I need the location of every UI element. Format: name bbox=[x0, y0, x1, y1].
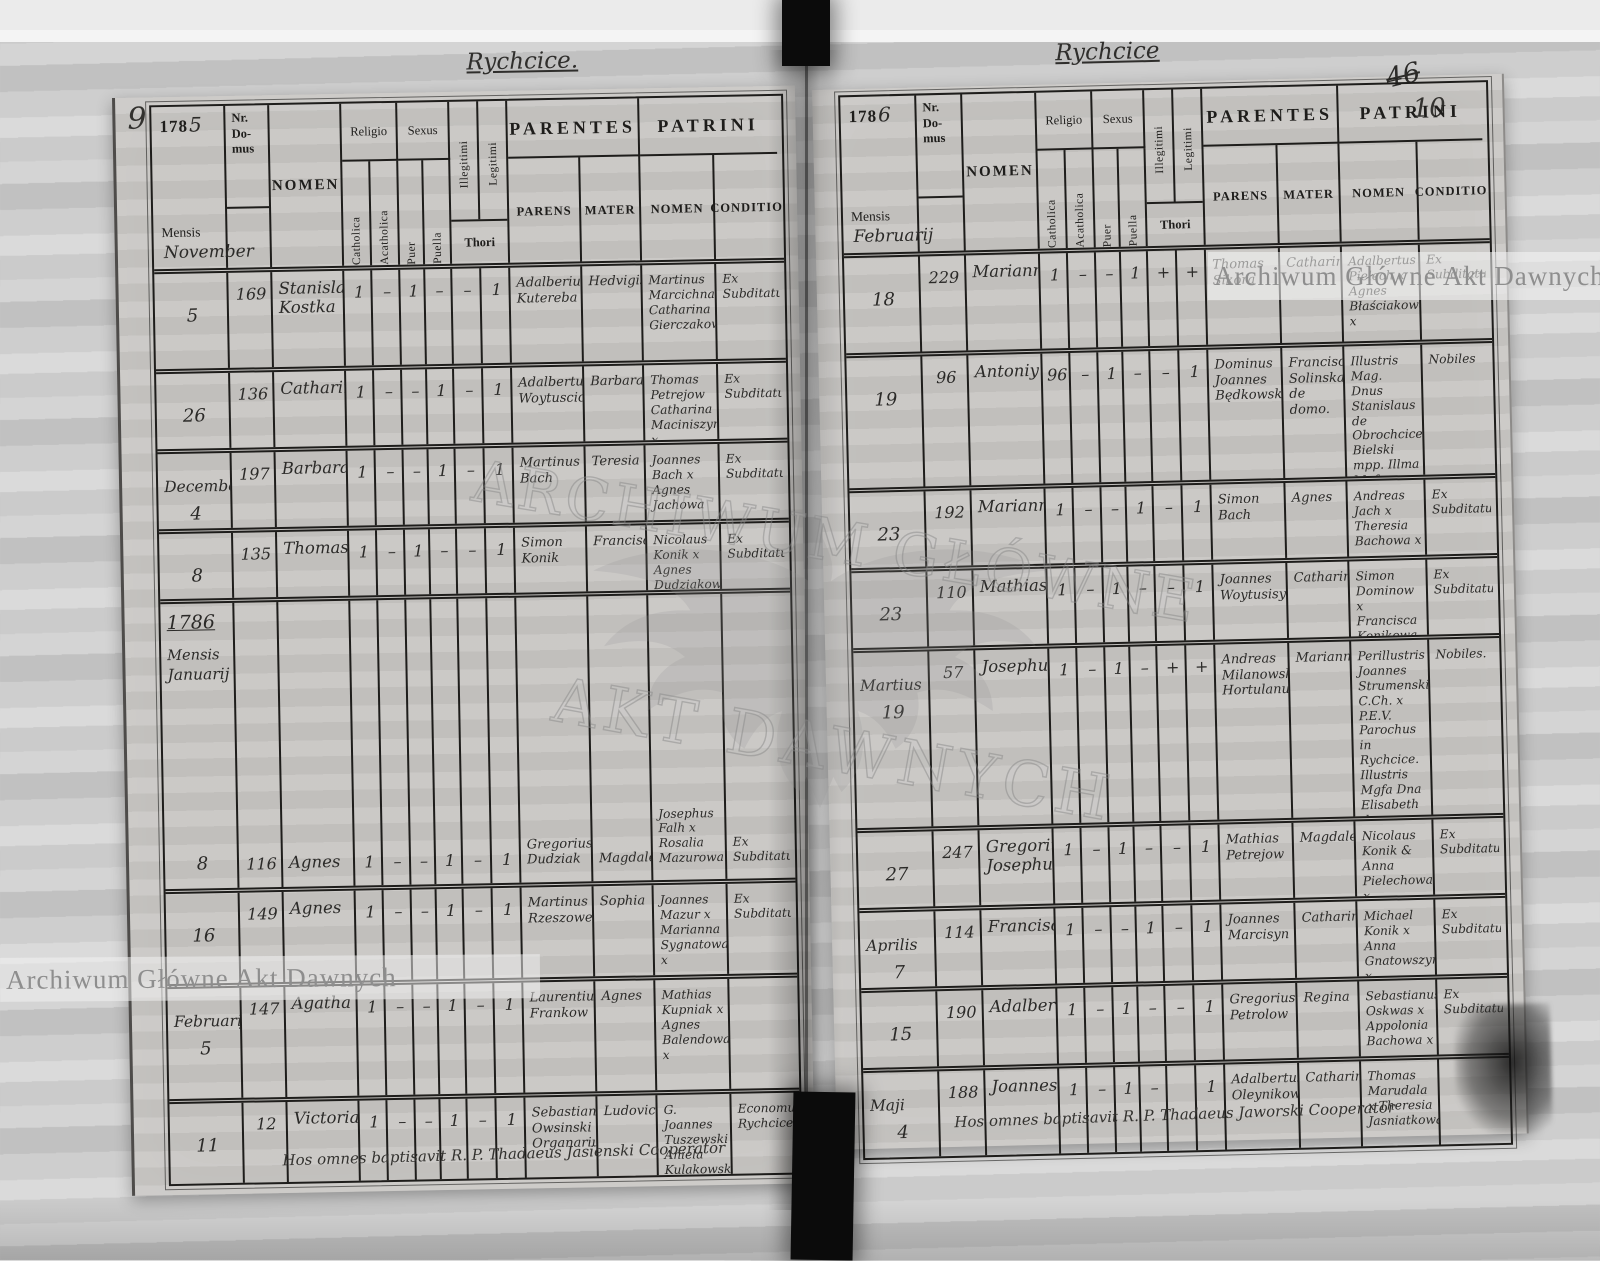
day-number: 15 bbox=[889, 1024, 912, 1046]
nr-domus-label: Nr. Do- mus bbox=[916, 95, 962, 199]
cell-nomen: Victoria bbox=[287, 1101, 360, 1182]
cell-patrini-nomen: Joannes Bach x Agnes Jachowa bbox=[645, 444, 720, 520]
cell-parens: Mathias Petrejow bbox=[1219, 823, 1295, 900]
header-thori-group: Illegitimi Legitimi Thori bbox=[449, 101, 510, 264]
day-number: 5 bbox=[187, 305, 199, 326]
year-note bbox=[867, 999, 932, 1001]
day-number: 26 bbox=[183, 405, 206, 426]
cell-mater: Catharina bbox=[1280, 247, 1344, 343]
cell-nr-domus: 57 bbox=[929, 650, 979, 826]
cell-conditio: Nobiles. bbox=[1429, 638, 1498, 814]
cell-month-date: Aprilis 7 bbox=[859, 911, 937, 988]
day-number: 23 bbox=[879, 604, 902, 626]
cell-legitimi: 1 bbox=[1179, 350, 1211, 481]
cell-nr-domus: 114 bbox=[935, 910, 983, 986]
cell-month-date: 5 bbox=[154, 273, 230, 369]
header-sexus: Sexus bbox=[1092, 90, 1145, 149]
cell-catholica: 1 bbox=[1055, 908, 1085, 984]
cell-illegitimi: + bbox=[1148, 250, 1179, 346]
cell-patrini-nomen: Thomas Petrejow Catharina Maciniszyna x bbox=[644, 364, 719, 440]
day-number: 23 bbox=[877, 524, 900, 546]
day-number: 16 bbox=[192, 925, 215, 946]
cell-patrini-nomen: Perillustris Joannes Strumenski C.Ch. x … bbox=[1351, 640, 1433, 817]
cell-conditio: Ex Subditatu bbox=[722, 593, 790, 879]
cell-conditio: Nobiles bbox=[1422, 343, 1490, 474]
mensis-note bbox=[850, 279, 915, 281]
cell-conditio: Ex Subditatu bbox=[721, 523, 785, 589]
cell-nr-domus: 190 bbox=[937, 990, 985, 1066]
cell-nomen: Adalbertus bbox=[983, 988, 1059, 1065]
cell-parens: Simon Bach bbox=[1211, 483, 1287, 560]
header-nr-domus: Nr. Do- mus bbox=[225, 105, 272, 268]
cell-puer: 1 bbox=[400, 269, 427, 364]
cell-legitimi: + bbox=[1177, 250, 1208, 346]
table-body: 18 229 Marianna 1 – – 1 + + Thomas Sikor… bbox=[844, 243, 1511, 1158]
cell-catholica: 96 bbox=[1042, 353, 1073, 484]
month-name bbox=[161, 297, 224, 298]
header-religio: Religio bbox=[341, 103, 398, 162]
page-number: 9 bbox=[127, 101, 147, 136]
cell-illegitimi: – bbox=[1155, 565, 1186, 641]
ink-smudge bbox=[1454, 1003, 1553, 1135]
day-number: 8 bbox=[197, 853, 209, 874]
table-row: Aprilis 7 114 Francisca 1 – – 1 – 1 Joan… bbox=[859, 898, 1507, 993]
cell-acatholica: – bbox=[377, 530, 406, 596]
mensis-note bbox=[174, 1010, 237, 1011]
cell-legitimi: 1 bbox=[1190, 825, 1221, 901]
cell-puella: 1 bbox=[428, 449, 456, 524]
month-name bbox=[864, 855, 929, 857]
header-illegitimi: Illegitimi bbox=[1144, 89, 1176, 202]
table-row: 19 96 Antoniy 96 – 1 – – 1 Dominus Joann… bbox=[846, 343, 1495, 493]
cell-parens: Simon Konik bbox=[515, 526, 588, 592]
cell-nomen: Gregorius Josephus bbox=[979, 829, 1055, 906]
month-name: Januarij bbox=[167, 665, 230, 684]
header-nr-domus: Nr. Do- mus bbox=[916, 94, 966, 251]
nr-domus-label: Nr. Do- mus bbox=[225, 105, 269, 209]
cell-conditio: Economus Rychcicensis bbox=[731, 1093, 795, 1174]
year-note bbox=[866, 919, 931, 921]
mensis-label: Mensis bbox=[161, 224, 221, 241]
month-name bbox=[172, 917, 235, 918]
cell-patrini-nomen: Joannes Mazur x Marianna Sygnatowa x bbox=[654, 884, 730, 975]
table-body: 5 169 Stanislaus Kostka 1 – 1 – – 1 Adal… bbox=[154, 263, 801, 1184]
cell-parens: Martinus Rzeszowek bbox=[522, 886, 596, 977]
table-row: 23 192 Marianna 1 – – 1 – 1 Simon Bach A… bbox=[850, 478, 1498, 573]
year-note bbox=[850, 265, 915, 267]
cell-month-date: 1786 Mensis Januarij 8 bbox=[160, 603, 239, 889]
cell-illegitimi: – bbox=[452, 268, 483, 364]
cell-mater: Agnes bbox=[1285, 481, 1349, 557]
year-note bbox=[173, 996, 236, 997]
cell-parens: Adalbertus Woytusciorzy bbox=[512, 366, 585, 442]
table-row: 18 229 Marianna 1 – – 1 + + Thomas Sikor… bbox=[844, 243, 1492, 358]
cell-mater: Barbara bbox=[584, 365, 645, 441]
cell-puer: 1 bbox=[1109, 827, 1136, 903]
header-illegitimi: Illegitimi bbox=[449, 101, 480, 220]
day-number: 5 bbox=[200, 1038, 212, 1059]
year-note bbox=[858, 580, 923, 582]
cell-legitimi: + bbox=[1186, 645, 1219, 821]
cell-mater: Catharina bbox=[1287, 561, 1351, 637]
table-row: Februarij 5 147 Agatha 1 – – 1 – 1 Laure… bbox=[167, 978, 799, 1105]
cell-conditio: Ex Subditatu bbox=[1420, 243, 1487, 340]
table-row: 5 169 Stanislaus Kostka 1 – 1 – – 1 Adal… bbox=[154, 263, 786, 375]
cell-puer: 1 bbox=[1113, 987, 1140, 1063]
header-patrini-nomen: NOMEN bbox=[640, 155, 716, 260]
cell-month-date: December 4 bbox=[158, 453, 233, 529]
mensis-note bbox=[162, 395, 225, 396]
header-mensis-column: 1786 Mensis Februarij bbox=[840, 96, 920, 254]
header-puella: Puella bbox=[1118, 148, 1147, 247]
cell-acatholica: – bbox=[375, 450, 404, 526]
cell-puella: – bbox=[425, 269, 454, 364]
cell-puella: – bbox=[1134, 826, 1163, 902]
header-patrini-nomen: NOMEN bbox=[1339, 142, 1419, 242]
cell-acatholica: – bbox=[1085, 987, 1115, 1063]
cell-nr-domus: 169 bbox=[228, 272, 274, 368]
cell-nomen: Marianna bbox=[966, 254, 1042, 351]
header-legitimi: Legitimi bbox=[1173, 89, 1203, 202]
cell-month-date: 27 bbox=[858, 831, 936, 908]
cell-illegitimi: + bbox=[1157, 645, 1190, 821]
table-row: 15 190 Adalbertus 1 – 1 – – 1 Gregorius … bbox=[861, 978, 1509, 1073]
cell-patrini-nomen: Sebastianus Oskwas x Appolonia Bachowa x bbox=[1359, 980, 1439, 1057]
cell-conditio: Ex Subditatu bbox=[718, 363, 782, 439]
table-header: 1786 Mensis Februarij Nr. Do- mus NOMEN … bbox=[840, 82, 1490, 258]
cell-puella: – bbox=[430, 529, 458, 594]
header-conditio: CONDITIO bbox=[714, 154, 779, 259]
mensis-note bbox=[172, 915, 235, 916]
cell-nr-domus: 247 bbox=[933, 830, 981, 906]
cell-catholica: 1 bbox=[1049, 648, 1081, 824]
header-parens: PARENS bbox=[1203, 145, 1279, 245]
cell-legitimi: 1 bbox=[1194, 985, 1225, 1061]
cell-acatholica: – bbox=[1081, 827, 1111, 903]
cell-illegitimi: – bbox=[457, 528, 487, 594]
cell-mater: Regina bbox=[1297, 981, 1361, 1057]
cell-parens: Laurentius Frankow bbox=[523, 981, 597, 1092]
cell-conditio: Ex Subditatu bbox=[716, 263, 781, 359]
cell-conditio: Ex Subditatu bbox=[1433, 818, 1500, 895]
cell-illegitimi: – bbox=[454, 368, 484, 444]
cell-patrini-nomen: Josephus Falh x Rosalia Mazurowa bbox=[648, 594, 727, 880]
cell-catholica: 1 bbox=[1040, 253, 1070, 349]
header-thori: Thori bbox=[451, 219, 508, 264]
cell-catholica: 1 bbox=[348, 450, 377, 526]
cell-acatholica: – bbox=[1073, 487, 1103, 563]
header-mater: MATER bbox=[580, 156, 642, 261]
mensis-note bbox=[853, 379, 918, 381]
cell-month-date: 26 bbox=[156, 373, 231, 449]
header-sexus: Sexus bbox=[397, 102, 450, 161]
cell-mater: Magdalena bbox=[1293, 821, 1357, 897]
cell-patrini-nomen: Mathias Kupniak x Agnes Balendowa x bbox=[655, 979, 731, 1090]
cell-catholica: 1 bbox=[359, 1100, 388, 1180]
cell-patrini-nomen: Illustris Mag. Dnus Stanislaus de Obroch… bbox=[1344, 345, 1425, 477]
cell-puer: – bbox=[415, 1099, 441, 1179]
register-table: 1786 Mensis Februarij Nr. Do- mus NOMEN … bbox=[838, 80, 1513, 1160]
cell-mater: Teresia bbox=[585, 445, 646, 521]
cell-puer: – bbox=[413, 984, 440, 1094]
cell-catholica: 1 bbox=[1057, 988, 1087, 1064]
cell-legitimi: 1 bbox=[494, 983, 525, 1094]
cell-nomen: Josephus bbox=[975, 649, 1053, 826]
mensis-note: Mensis bbox=[167, 647, 230, 664]
illegitimi-legitimi: Illegitimi Legitimi bbox=[449, 101, 507, 220]
month-name bbox=[165, 557, 228, 558]
header-religio: Religio bbox=[1036, 91, 1093, 150]
cell-puella: – bbox=[1130, 646, 1161, 822]
year-note bbox=[864, 839, 929, 841]
cell-nr-domus: 96 bbox=[922, 355, 971, 486]
cell-nr-domus: 136 bbox=[230, 372, 275, 448]
cell-parens: Joannes Marcisyn bbox=[1221, 903, 1297, 980]
cell-parens: Thomas Sikora bbox=[1206, 248, 1282, 345]
cell-illegitimi: – bbox=[1165, 985, 1196, 1061]
cell-nomen: Mathias bbox=[973, 569, 1049, 646]
cell-conditio: Ex Subditatu bbox=[1427, 558, 1494, 635]
cell-month-date: 16 bbox=[166, 893, 242, 984]
year-note bbox=[162, 381, 225, 382]
header-catholica: Catholica bbox=[1037, 150, 1067, 249]
header-patrini: PATRINI bbox=[639, 96, 777, 157]
cell-month-date: 15 bbox=[861, 991, 939, 1068]
cell-nomen: Francisca bbox=[981, 908, 1057, 985]
table-row: 8 135 Thomas 1 – 1 – – 1 Simon Konik Fra… bbox=[159, 523, 790, 605]
cell-catholica: 1 bbox=[346, 370, 375, 446]
cell-acatholica: – bbox=[1077, 647, 1109, 823]
cell-conditio: Ex Subditatu bbox=[728, 883, 793, 974]
cell-acatholica: – bbox=[385, 985, 415, 1095]
cell-puella: 1 bbox=[427, 369, 455, 444]
cell-puer: – bbox=[1111, 907, 1138, 983]
header-puer: Puer bbox=[398, 160, 425, 264]
cell-puella: 1 bbox=[1121, 251, 1150, 347]
year-note bbox=[164, 461, 227, 462]
month-name bbox=[856, 516, 921, 518]
binding-string bbox=[805, 62, 808, 1122]
cell-puer: – bbox=[412, 889, 439, 979]
cell-illegitimi: – bbox=[1163, 905, 1194, 981]
cell-month-date: Martius 19 bbox=[853, 651, 933, 828]
month-name bbox=[851, 281, 916, 283]
cell-nomen: Thomas bbox=[277, 531, 350, 597]
cell-month-date: 11 bbox=[169, 1103, 244, 1184]
table-row: 16 149 Agnes 1 – – 1 – 1 Martinus Rzeszo… bbox=[166, 883, 798, 990]
cell-legitimi: 1 bbox=[1182, 485, 1213, 561]
cell-month-date: Maji 4 bbox=[863, 1071, 941, 1158]
cell-parens: Sebastian Owsinski Organarius bbox=[525, 1096, 598, 1177]
mensis-note bbox=[858, 594, 923, 596]
day-number: 11 bbox=[196, 1135, 219, 1156]
cell-legitimi: 1 bbox=[493, 888, 524, 979]
mensis-note bbox=[161, 295, 224, 296]
header-legitimi: Legitimi bbox=[478, 101, 507, 219]
cell-nr-domus: 135 bbox=[233, 532, 278, 598]
cell-nomen: Barbara bbox=[276, 451, 349, 527]
cell-puella: 1 bbox=[437, 889, 466, 979]
cell-patrini-nomen: Adalbertus Pielech x Agnes Błaściakowa x bbox=[1342, 245, 1422, 342]
year-note bbox=[856, 500, 921, 502]
cell-month-date: 18 bbox=[844, 257, 922, 354]
cell-legitimi: 1 bbox=[1184, 565, 1215, 641]
cell-nomen: Agatha bbox=[285, 986, 359, 1097]
year-note bbox=[172, 901, 235, 902]
page-title: Rychcice bbox=[1055, 38, 1160, 66]
cell-nomen: Catharina bbox=[274, 371, 347, 447]
cell-puella: 1 bbox=[1126, 486, 1155, 562]
cell-legitimi: 1 bbox=[486, 528, 516, 594]
cell-patrini-nomen: G. Joannes Tuszewski Aniela Kulakowska bbox=[657, 1094, 732, 1175]
cell-nr-domus: 12 bbox=[243, 1102, 288, 1183]
month-name: Aprilis bbox=[866, 935, 931, 955]
cell-puella: – bbox=[1138, 986, 1167, 1062]
header-puella: Puella bbox=[423, 160, 452, 264]
cell-illegitimi: – bbox=[465, 983, 496, 1094]
cell-conditio: Ex Subditatu bbox=[1425, 478, 1492, 555]
day-number: 7 bbox=[893, 962, 905, 983]
cell-mater: Francisca bbox=[587, 525, 648, 591]
cell-puer: 1 bbox=[1103, 567, 1130, 643]
cell-legitimi: 1 bbox=[483, 368, 513, 444]
cell-nr-domus: 197 bbox=[232, 452, 277, 528]
header-parentes: PARENTES bbox=[1202, 86, 1339, 147]
cell-illegitimi: – bbox=[455, 448, 485, 524]
cell-acatholica: – bbox=[374, 370, 403, 446]
cell-patrini-nomen: Andreas Jach x Theresia Bachowa x bbox=[1347, 480, 1427, 557]
cell-month-date: 19 bbox=[846, 356, 925, 488]
table-row: 27 247 Gregorius Josephus 1 – 1 – – 1 Ma… bbox=[858, 818, 1506, 913]
cell-illegitimi: – bbox=[1153, 485, 1184, 561]
cell-patrini-nomen: Michael Konik x Anna Gnatowszyn x bbox=[1357, 900, 1437, 977]
cell-puer: – bbox=[1096, 252, 1123, 348]
day-number: 4 bbox=[190, 503, 202, 524]
cell-puella: 1 bbox=[440, 1099, 468, 1179]
month-name: Februarij bbox=[174, 1012, 237, 1031]
cell-illegitimi: – bbox=[464, 888, 495, 979]
cell-puer: – bbox=[403, 449, 429, 524]
year-note bbox=[160, 281, 223, 282]
cell-catholica: 1 bbox=[357, 985, 387, 1095]
cell-mater: Magdalena bbox=[588, 595, 653, 881]
day-number: 8 bbox=[191, 565, 203, 586]
cell-nr-domus: 149 bbox=[240, 892, 286, 983]
table-row: 26 136 Catharina 1 – – 1 – 1 Adalbertus … bbox=[156, 363, 787, 455]
cell-nomen: Marianna bbox=[971, 489, 1047, 566]
header-mensis-column: 1785 Mensis November bbox=[151, 106, 228, 269]
month-name bbox=[853, 381, 918, 383]
illegitimi-legitimi: Illegitimi Legitimi bbox=[1144, 89, 1203, 202]
cell-acatholica: – bbox=[1070, 352, 1101, 483]
right-register-page: Rychcice 46 10 1786 Mensis Februarij Nr.… bbox=[812, 74, 1529, 1150]
cell-conditio bbox=[729, 978, 794, 1089]
cell-acatholica: – bbox=[1075, 567, 1105, 643]
cell-acatholica: – bbox=[1083, 907, 1113, 983]
cell-legitimi: 1 bbox=[481, 268, 512, 364]
header-mater: MATER bbox=[1277, 144, 1341, 243]
month-name bbox=[163, 397, 226, 398]
cell-catholica: 1 bbox=[1047, 568, 1077, 644]
cell-mater: Marianna bbox=[1289, 641, 1355, 817]
year-note bbox=[165, 541, 228, 542]
cell-catholica: 1 bbox=[1053, 828, 1083, 904]
cell-acatholica: – bbox=[387, 1100, 416, 1180]
month-name: December bbox=[164, 477, 227, 496]
header-conditio: CONDITIO bbox=[1417, 140, 1484, 240]
month-name bbox=[858, 596, 923, 598]
year-note: 1786 bbox=[166, 611, 229, 634]
mensis-note bbox=[164, 475, 227, 476]
cell-parens: Gregorius Petrolow bbox=[1223, 983, 1299, 1060]
register-table: 1785 Mensis November Nr. Do- mus NOMEN R… bbox=[149, 94, 803, 1186]
cell-catholica: 1 bbox=[356, 890, 386, 980]
cell-mater: Catharina bbox=[1295, 901, 1359, 977]
cell-catholica: 1 bbox=[349, 530, 378, 596]
month-header: Februarij bbox=[853, 226, 913, 247]
header-thori: Thori bbox=[1147, 201, 1204, 246]
cell-mater: Ludovica bbox=[597, 1095, 658, 1176]
cell-puer: – bbox=[402, 369, 428, 444]
cell-nomen: Stanislaus Kostka bbox=[272, 271, 346, 367]
cell-patrini-nomen: Simon Dominow x Francisca Konikowa x bbox=[1349, 560, 1429, 637]
binding-strap-top bbox=[782, 0, 830, 66]
table-row: December 4 197 Barbara 1 – – 1 – 1 Marti… bbox=[158, 443, 789, 535]
mensis-note bbox=[176, 1125, 239, 1126]
year-note bbox=[176, 1111, 239, 1112]
cell-puella: 1 bbox=[438, 984, 467, 1094]
cell-month-date: 23 bbox=[850, 491, 928, 568]
cell-parens: Martinus Bach bbox=[513, 446, 586, 522]
cell-nomen: Agnes bbox=[284, 891, 358, 982]
header-thori-group: Illegitimi Legitimi Thori bbox=[1144, 89, 1206, 246]
month-name bbox=[868, 1015, 933, 1017]
binding-strap-bottom bbox=[791, 1091, 856, 1260]
header-patrini: PATRINI bbox=[1338, 82, 1482, 143]
cell-conditio: Ex Subditatu bbox=[1435, 898, 1502, 975]
cell-puella: 1 bbox=[1136, 906, 1165, 982]
table-row: Martius 19 57 Josephus 1 – 1 – + + Andre… bbox=[853, 638, 1503, 833]
table-header: 1785 Mensis November Nr. Do- mus NOMEN R… bbox=[151, 96, 784, 275]
day-number: 4 bbox=[897, 1122, 909, 1143]
cell-acatholica: – bbox=[384, 890, 414, 980]
page-title: Rychcice. bbox=[466, 47, 578, 75]
cell-parens: Andreas Milanowski Hortulanus bbox=[1215, 643, 1293, 820]
mensis-label: Mensis bbox=[851, 208, 913, 225]
cell-parens: Gregorius Dudziak bbox=[516, 596, 593, 882]
cell-mater: Agnes bbox=[595, 980, 657, 1091]
header-puer: Puer bbox=[1093, 149, 1120, 248]
cell-nr-domus: 110 bbox=[927, 570, 975, 646]
cell-nomen: Agnes bbox=[278, 601, 355, 887]
year-label: 1785 bbox=[159, 112, 219, 137]
cell-illegitimi: – bbox=[467, 1098, 497, 1179]
cell-acatholica: – bbox=[372, 270, 402, 365]
cell-illegitimi: – bbox=[1150, 350, 1182, 481]
year-note bbox=[853, 365, 918, 367]
cell-patrini-nomen: Nicolaus Konik x Agnes Dudziakowa bbox=[647, 524, 722, 590]
month-name: Martius bbox=[860, 676, 925, 696]
header-catholica: Catholica bbox=[342, 161, 372, 265]
cell-conditio: Ex Subditatu bbox=[719, 443, 783, 519]
cell-parens: Dominus Joannes Będkowski bbox=[1208, 348, 1285, 480]
month-name bbox=[176, 1127, 239, 1128]
cell-month-date: 23 bbox=[851, 571, 929, 648]
cell-puella: – bbox=[1128, 566, 1157, 642]
cell-mater: Hedvigis bbox=[582, 265, 644, 361]
header-acatholica: Acatholica bbox=[370, 161, 400, 265]
cell-illegitimi: – bbox=[1161, 825, 1192, 901]
